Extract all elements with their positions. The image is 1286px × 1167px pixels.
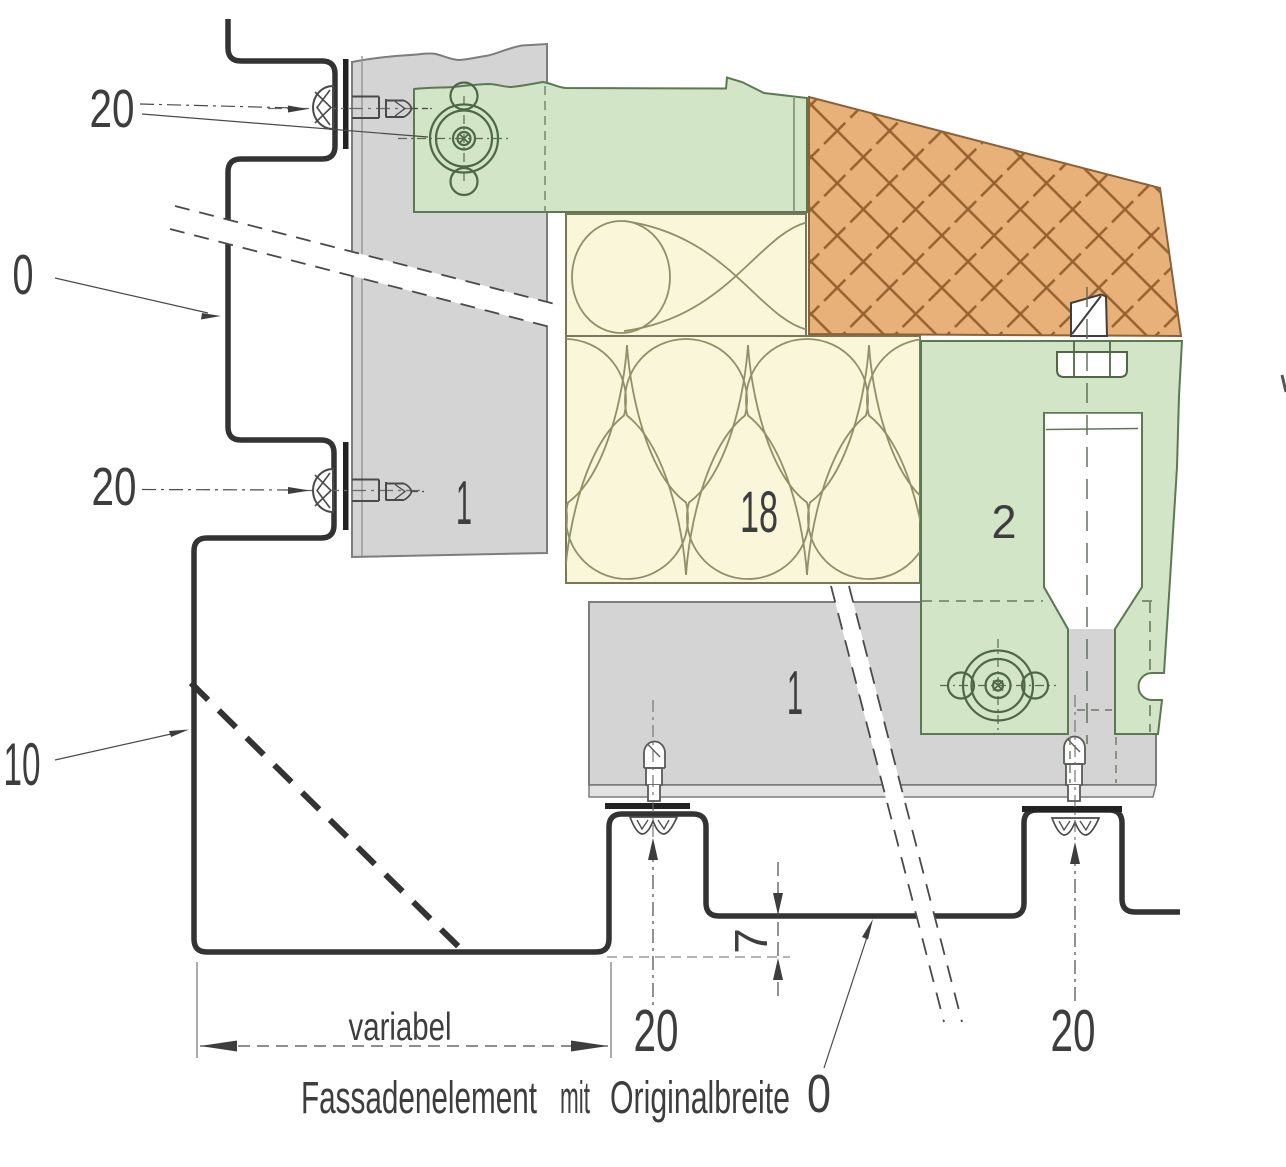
svg-text:Originalbreite: Originalbreite <box>610 1072 790 1123</box>
svg-text:1: 1 <box>456 469 472 538</box>
svg-text:2: 2 <box>992 495 1017 548</box>
svg-text:10: 10 <box>4 731 41 798</box>
svg-text:18: 18 <box>740 480 778 545</box>
svg-text:mit: mit <box>560 1072 590 1123</box>
svg-text:1: 1 <box>787 659 803 728</box>
svg-text:20: 20 <box>90 79 135 139</box>
svg-text:20: 20 <box>634 998 679 1064</box>
svg-text:Fassadenelement: Fassadenelement <box>301 1072 537 1123</box>
svg-text:0: 0 <box>807 1064 831 1124</box>
svg-text:20: 20 <box>1051 998 1096 1064</box>
svg-text:variabel: variabel <box>349 1006 452 1049</box>
svg-text:20: 20 <box>92 457 137 517</box>
svg-text:0: 0 <box>13 243 34 307</box>
svg-text:7: 7 <box>725 928 777 954</box>
